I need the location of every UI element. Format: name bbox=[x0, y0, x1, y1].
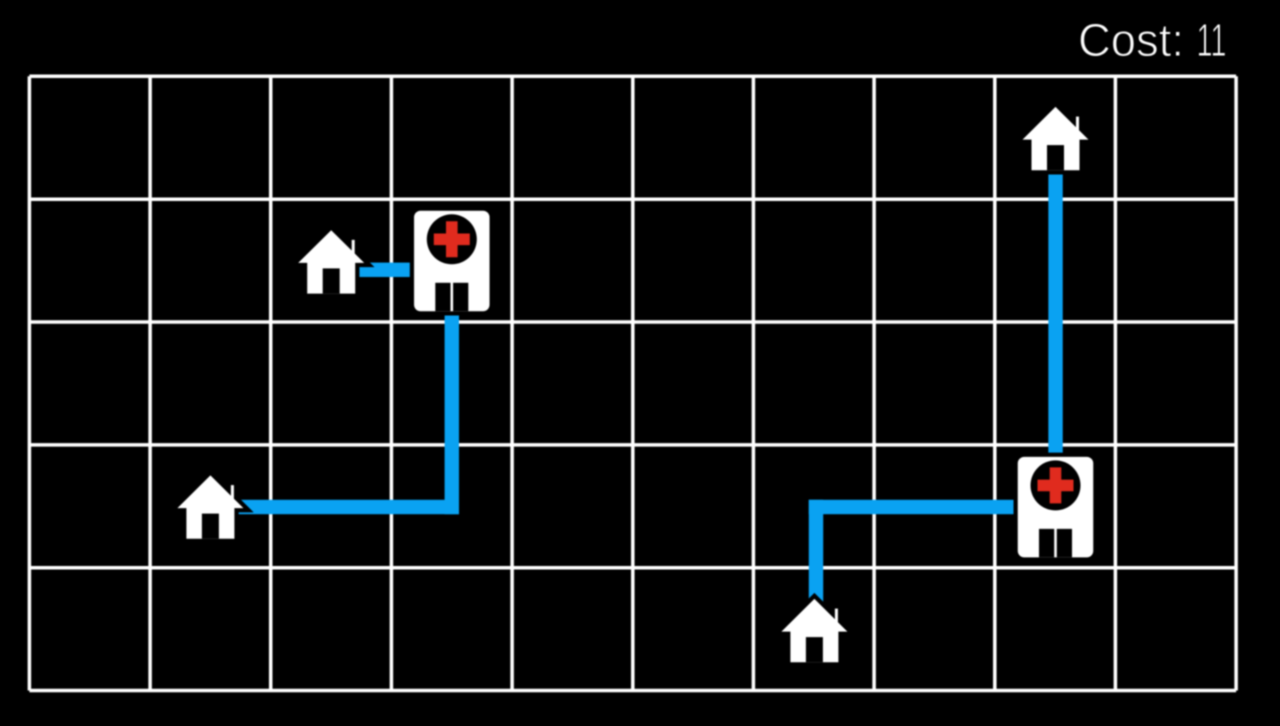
svg-text:11: 11 bbox=[1197, 14, 1227, 66]
svg-text:Cost:: Cost: bbox=[1078, 14, 1184, 66]
